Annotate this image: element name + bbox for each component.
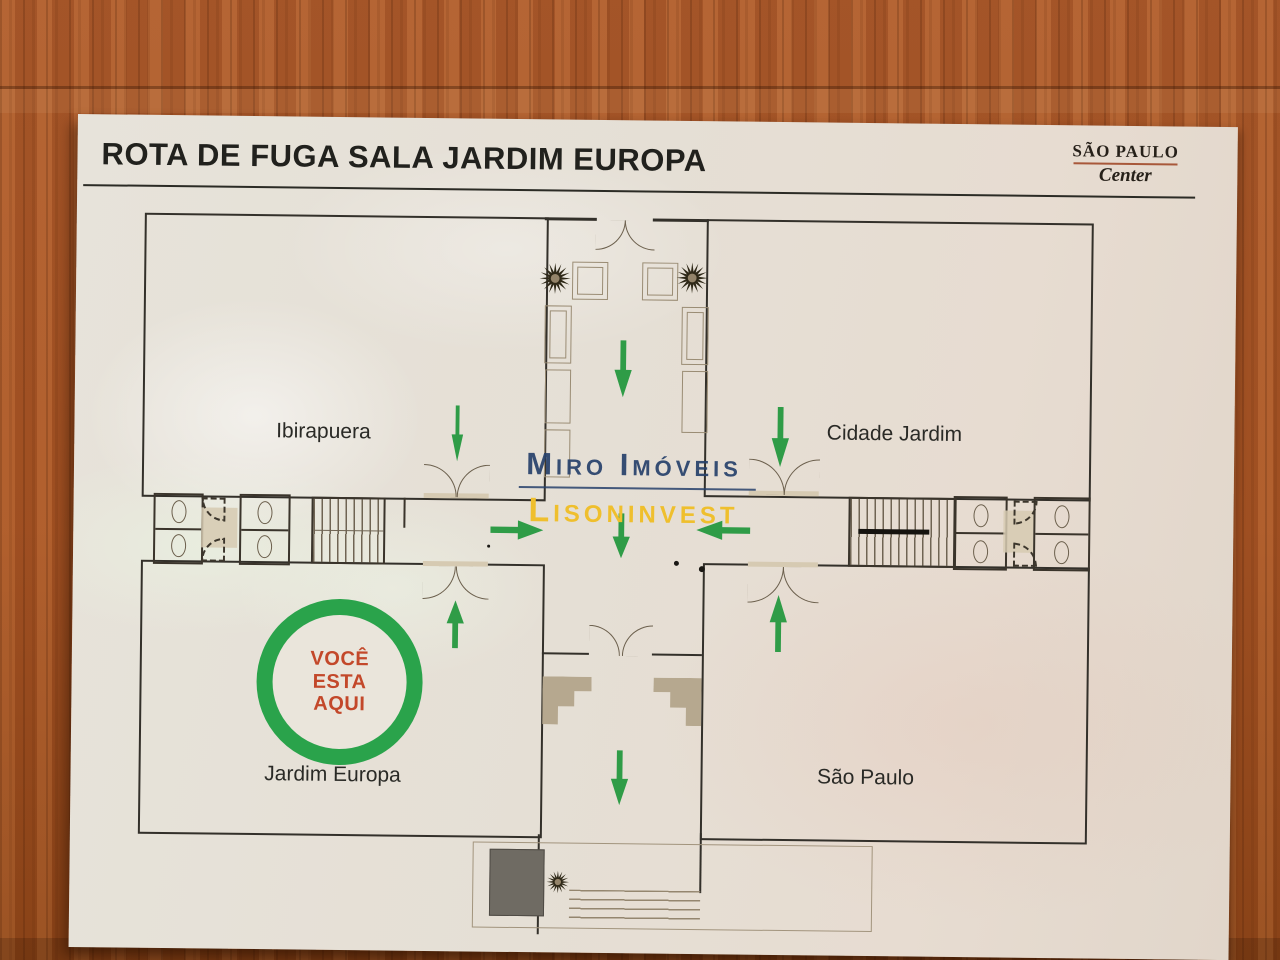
armchair-symbol: [642, 262, 678, 300]
elevator-car: [257, 501, 272, 524]
logo-subtitle: Center: [1065, 164, 1185, 187]
plant-icon: [539, 262, 571, 294]
door-leaf-arc: [595, 220, 625, 250]
you-are-here-line2: ESTA: [313, 670, 367, 693]
room-label-sao-paulo: São Paulo: [755, 765, 975, 791]
step-shape: [542, 676, 592, 725]
plan-dot: [674, 561, 679, 566]
watermark-lisoninvest: Lisoninvest: [483, 491, 783, 533]
room-sao-paulo: [700, 563, 1090, 844]
arrow-down-icon: [610, 750, 629, 805]
elevator-cell: [241, 530, 288, 563]
logo-name: SÃO PAULO: [1066, 141, 1186, 162]
planter-box: [489, 849, 545, 917]
elevator-car: [171, 500, 186, 523]
elevator-cell: [155, 529, 201, 562]
sofa-symbol: [681, 371, 708, 433]
elevator-car: [973, 504, 988, 527]
wall-segment: [652, 654, 702, 657]
sofa-symbol: [681, 307, 709, 365]
elevator-symbol: [1033, 497, 1091, 572]
sao-paulo-center-logo: SÃO PAULO Center: [1065, 141, 1186, 187]
elevator-cell: [1035, 499, 1088, 536]
elevator-car: [1054, 541, 1069, 564]
elevator-car: [170, 534, 185, 557]
sofa-symbol: [544, 305, 572, 363]
photo-of-evacuation-sign: { "title": "ROTA DE FUGA SALA JARDIM EUR…: [0, 0, 1280, 960]
elevator-car: [257, 535, 272, 558]
title-underline: [83, 184, 1195, 199]
door-leaf-arc: [622, 625, 653, 656]
wall-segment: [403, 498, 405, 528]
elevator-symbol: [239, 494, 291, 566]
room-label-ibirapuera: Ibirapuera: [213, 419, 433, 445]
stairs-symbol: [311, 497, 386, 565]
armchair-symbol: [572, 262, 608, 300]
watermark-miro-imoveis: Miro Imóveis: [484, 446, 784, 485]
elevator-cell: [155, 495, 201, 530]
door-leaf-arc: [589, 625, 620, 656]
room-label-cidade-jardim: Cidade Jardim: [784, 421, 1004, 447]
plant-icon: [676, 262, 708, 294]
elevator-cell: [1035, 535, 1088, 570]
you-are-here-line1: VOCÊ: [310, 648, 369, 671]
wall-segment: [545, 217, 597, 220]
sofa-symbol: [545, 369, 572, 423]
room-label-jardim-europa: Jardim Europa: [222, 762, 442, 788]
stairs-symbol: [848, 497, 957, 568]
elevator-cell: [955, 534, 1005, 569]
plan-dot: [487, 545, 490, 548]
wall-segment: [653, 219, 709, 222]
door-leaf-arc: [624, 220, 654, 250]
plant-icon: [546, 870, 569, 893]
step-shape: [653, 678, 702, 727]
elevator-cell: [955, 498, 1005, 535]
elevator-symbol: [953, 496, 1008, 571]
elevator-car: [1054, 505, 1069, 528]
plan-dot: [699, 566, 705, 572]
arrow-down-icon: [614, 340, 633, 397]
sign-title: ROTA DE FUGA SALA JARDIM EUROPA: [101, 136, 706, 179]
evacuation-sign-board: ROTA DE FUGA SALA JARDIM EUROPA SÃO PAUL…: [69, 114, 1238, 960]
elevator-symbol: [153, 493, 204, 565]
you-are-here-line3: AQUI: [313, 693, 365, 716]
elevator-cell: [241, 496, 288, 531]
wood-panel-band: [0, 89, 1280, 113]
wall-segment: [542, 652, 589, 655]
stairs-symbol: [569, 890, 700, 925]
elevator-car: [972, 540, 987, 563]
